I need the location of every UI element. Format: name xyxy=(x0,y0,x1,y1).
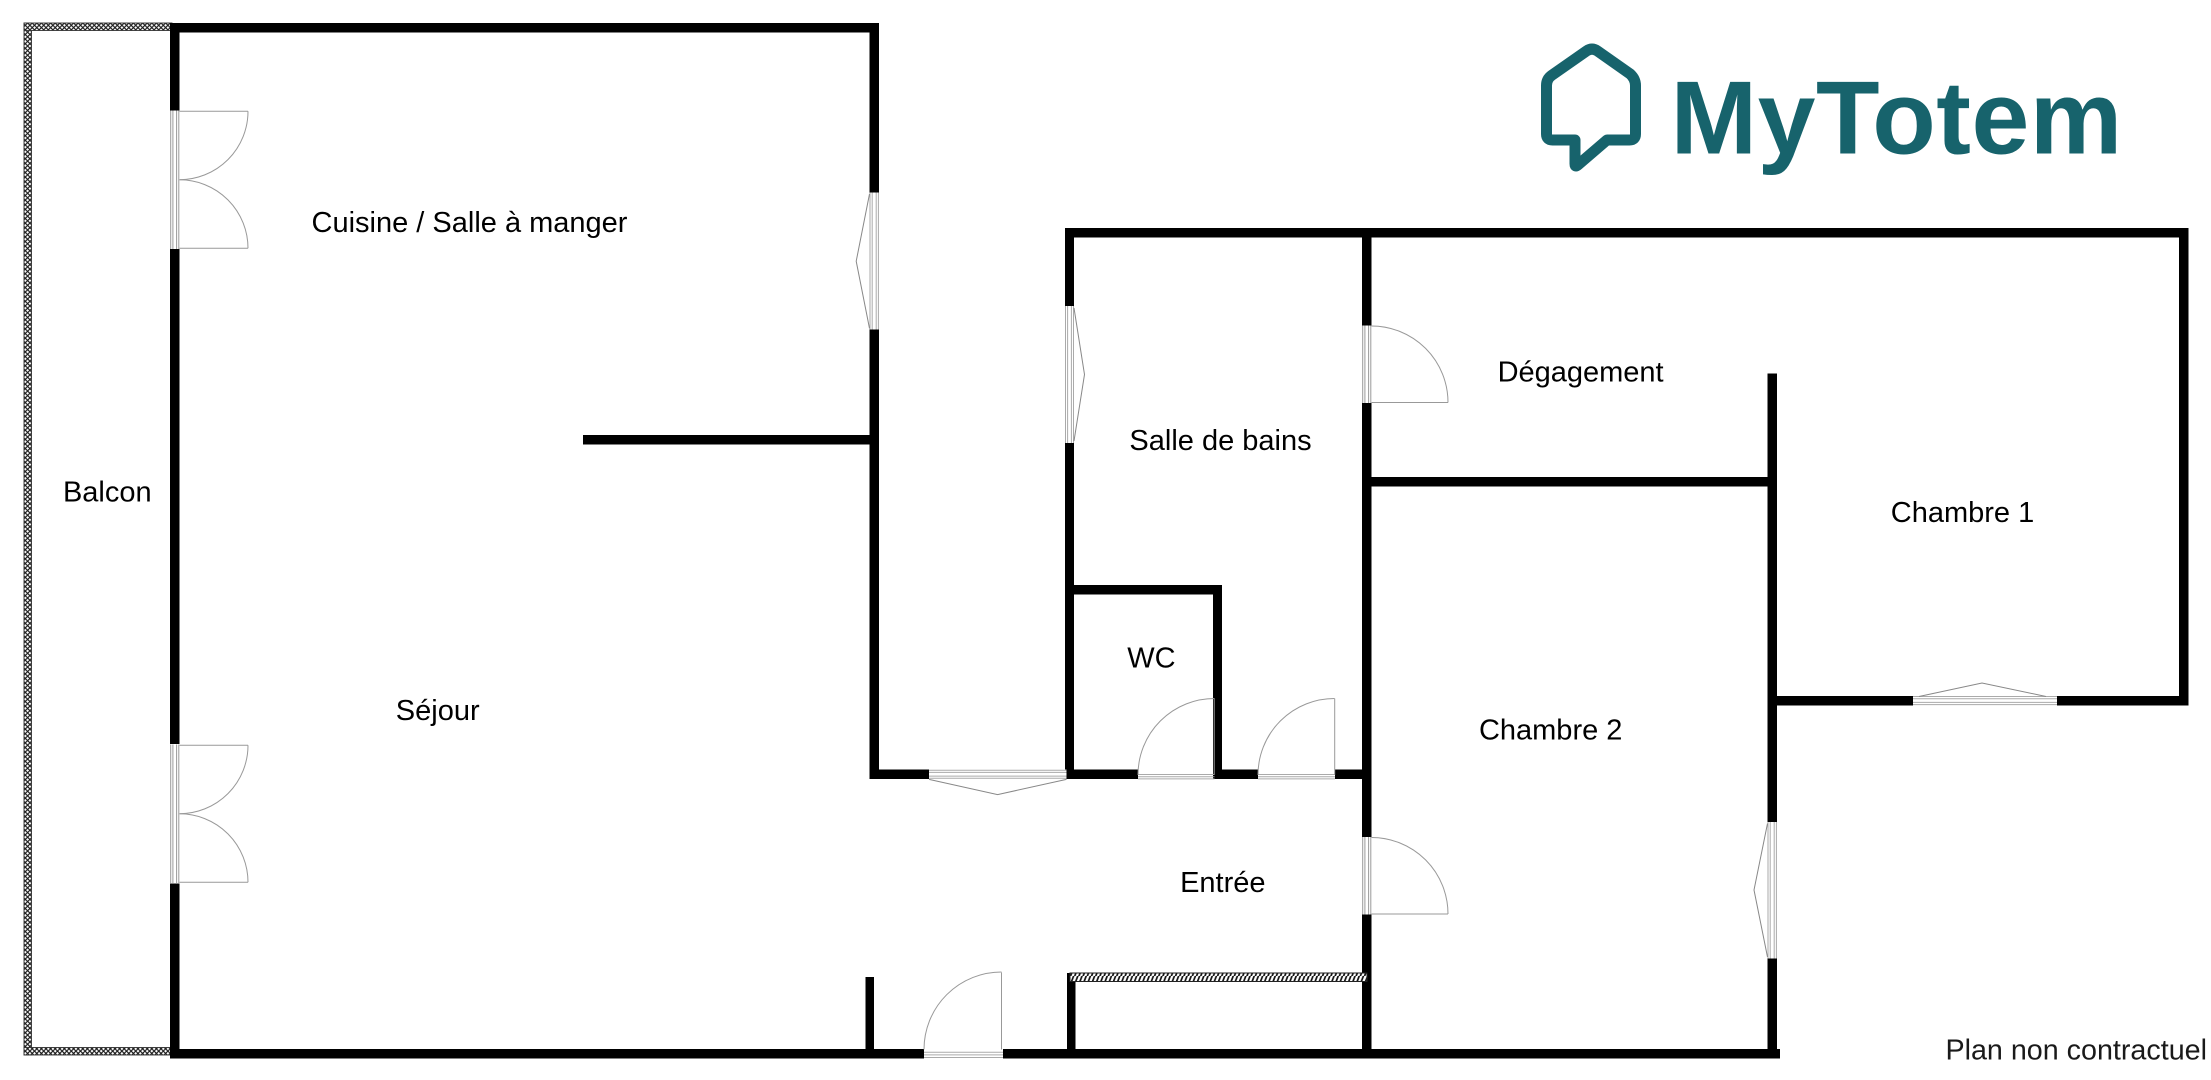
svg-text:WC: WC xyxy=(1127,643,1175,675)
svg-text:Chambre 1: Chambre 1 xyxy=(1891,497,2034,529)
svg-text:Entrée: Entrée xyxy=(1180,867,1265,899)
svg-text:Chambre 2: Chambre 2 xyxy=(1479,715,1622,747)
svg-text:Dégagement: Dégagement xyxy=(1498,357,1664,389)
svg-text:Balcon: Balcon xyxy=(63,477,152,509)
svg-text:Séjour: Séjour xyxy=(396,695,480,727)
svg-text:Cuisine / Salle à manger: Cuisine / Salle à manger xyxy=(312,207,628,239)
svg-text:Plan non contractuel: Plan non contractuel xyxy=(1945,1035,2207,1067)
svg-text:Salle de bains: Salle de bains xyxy=(1129,425,1311,457)
svg-text:MyTotem: MyTotem xyxy=(1671,61,2123,177)
